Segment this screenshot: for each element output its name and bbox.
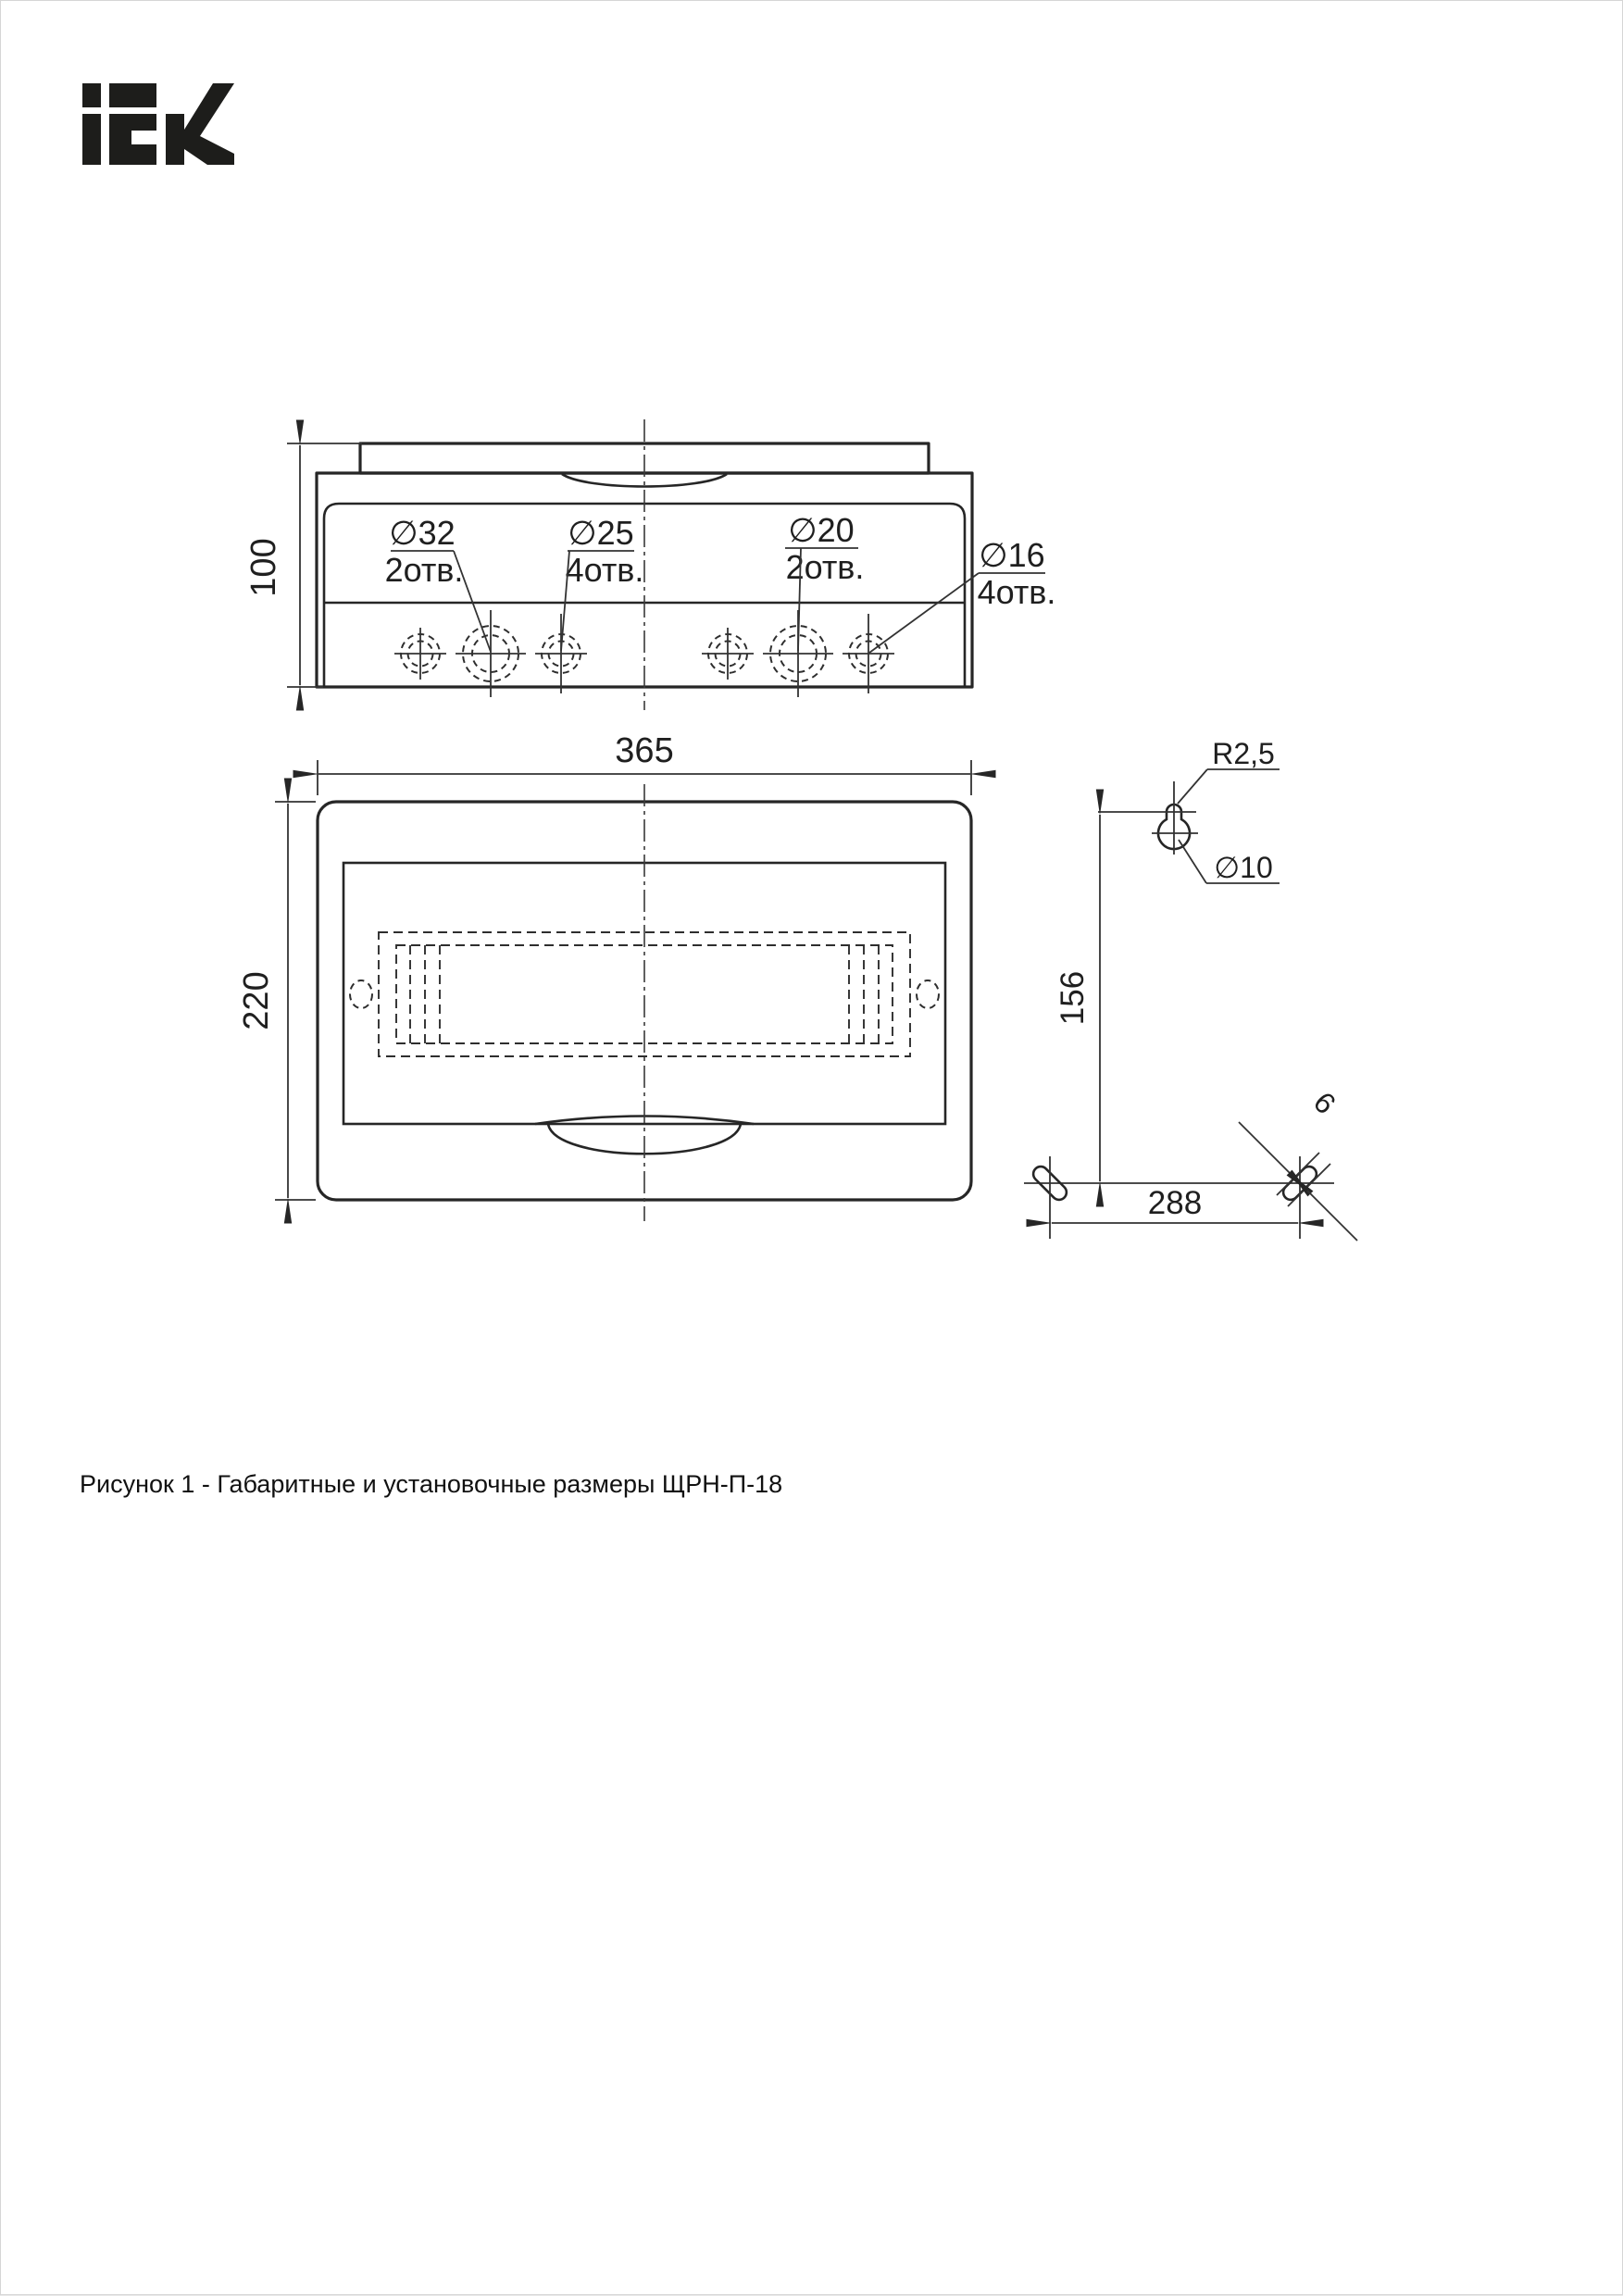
mounting-view: R2,5 ∅10 156 288 bbox=[1024, 737, 1357, 1241]
knockout-1 bbox=[394, 628, 446, 680]
top-view: 100 ∅32 2отв. ∅25 4отв. ∅20 2отв. ∅16 4о… bbox=[244, 419, 1055, 710]
din-end-brackets bbox=[410, 945, 879, 1043]
dimension-height-100: 100 bbox=[244, 443, 362, 687]
callout-d32-diameter: ∅32 bbox=[389, 514, 455, 552]
callout-d16-diameter: ∅16 bbox=[979, 536, 1044, 574]
callout-d25-holes: 4отв. bbox=[566, 551, 644, 589]
dimension-height-220: 220 bbox=[237, 802, 316, 1200]
knockout-3 bbox=[535, 614, 587, 693]
dim-156-label: 156 bbox=[1055, 971, 1091, 1025]
logo-i-stem bbox=[82, 114, 101, 165]
r25-leader bbox=[1178, 769, 1207, 804]
screw-hole-left bbox=[350, 980, 372, 1008]
r25-label: R2,5 bbox=[1212, 737, 1275, 770]
dimension-horizontal-288: 288 bbox=[1052, 1185, 1298, 1223]
din-window-inner bbox=[396, 945, 893, 1043]
callout-d25: ∅25 4отв. bbox=[561, 514, 643, 651]
dim-365-label: 365 bbox=[615, 731, 673, 770]
knockout-2-large bbox=[456, 610, 526, 697]
logo-i-dot bbox=[82, 83, 101, 107]
callout-d16-leader bbox=[869, 573, 979, 653]
dim-288-label: 288 bbox=[1148, 1185, 1202, 1221]
dim-220-label: 220 bbox=[237, 971, 276, 1029]
callout-d16: ∅16 4отв. bbox=[869, 536, 1055, 653]
logo-k bbox=[166, 83, 234, 165]
callout-d10: ∅10 bbox=[1179, 840, 1280, 884]
callout-d16-holes: 4отв. bbox=[978, 573, 1056, 611]
logo-e-body bbox=[109, 114, 156, 165]
dimension-slot-width-6: 6 bbox=[1239, 1085, 1357, 1241]
dim-6-label: 6 bbox=[1307, 1085, 1342, 1120]
callout-d20-holes: 2отв. bbox=[786, 548, 865, 586]
d10-label: ∅10 bbox=[1214, 851, 1272, 884]
dimension-vertical-156: 156 bbox=[1055, 815, 1100, 1181]
callout-r25: R2,5 bbox=[1178, 737, 1280, 804]
knockout-6 bbox=[843, 614, 894, 693]
knockout-4 bbox=[702, 628, 754, 680]
screw-hole-right bbox=[917, 980, 939, 1008]
drawing-canvas: iEK bbox=[1, 1, 1623, 2296]
dim-100-label: 100 bbox=[244, 538, 283, 596]
callout-d32-holes: 2отв. bbox=[385, 551, 464, 589]
callout-d25-diameter: ∅25 bbox=[568, 514, 633, 552]
callout-d20: ∅20 2отв. bbox=[785, 511, 864, 651]
iek-logo: iEK bbox=[82, 83, 234, 165]
callout-d20-diameter: ∅20 bbox=[788, 511, 854, 549]
d10-leader bbox=[1179, 840, 1206, 883]
technical-drawing-page: iEK bbox=[0, 0, 1623, 2295]
callout-d32-leader bbox=[454, 551, 491, 652]
front-view: 365 220 bbox=[237, 731, 971, 1221]
figure-caption: Рисунок 1 - Габаритные и установочные ра… bbox=[80, 1470, 782, 1498]
logo-e-top bbox=[109, 83, 156, 107]
